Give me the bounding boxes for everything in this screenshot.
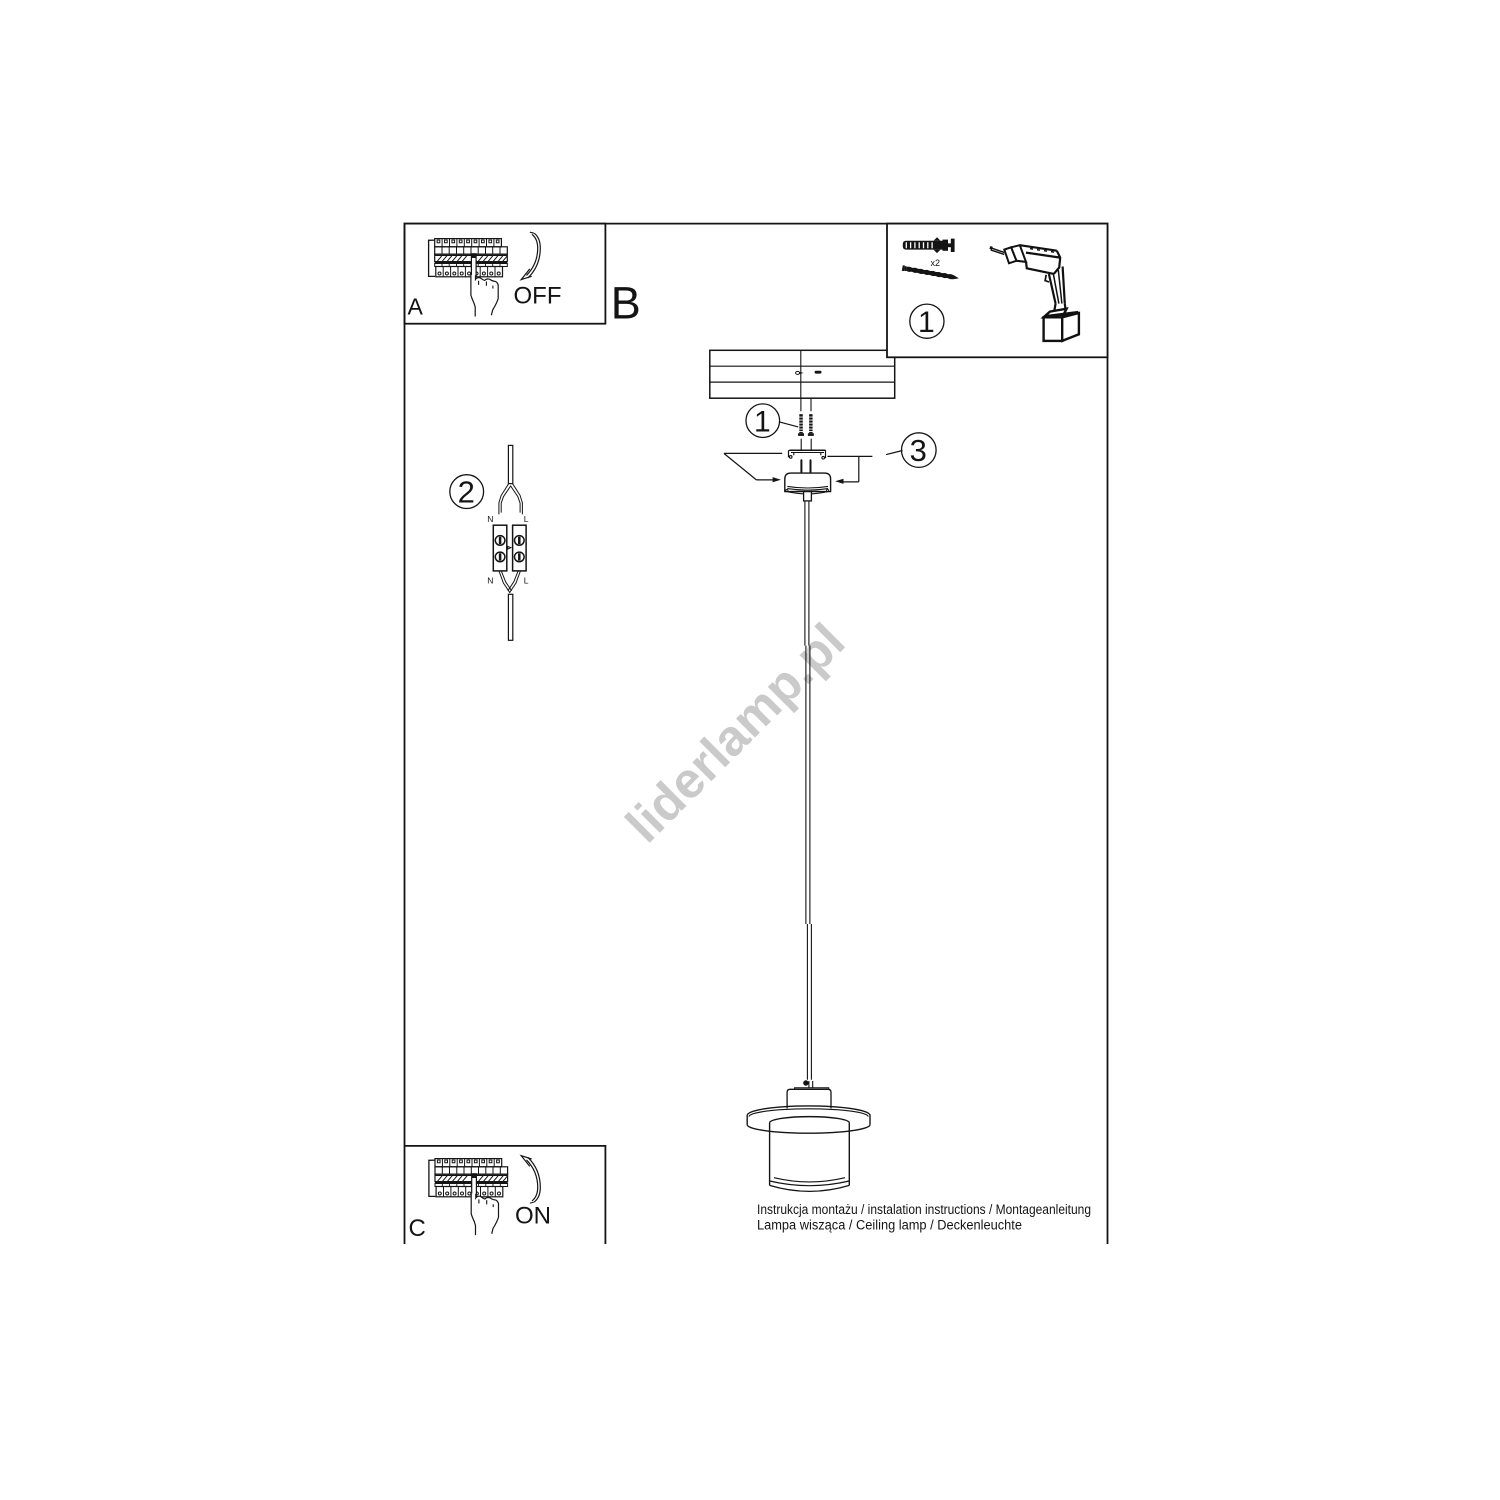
svg-text:x2: x2 — [931, 258, 941, 268]
svg-text:Lampa wisząca / Ceiling lamp /: Lampa wisząca / Ceiling lamp / Deckenleu… — [757, 1217, 1022, 1232]
svg-text:1: 1 — [754, 405, 771, 438]
svg-text:L: L — [524, 575, 529, 585]
svg-text:ON: ON — [515, 1203, 551, 1230]
svg-text:A: A — [408, 294, 424, 320]
svg-text:C: C — [409, 1215, 426, 1242]
svg-text:L: L — [524, 514, 529, 524]
svg-text:Instrukcja montażu / instalati: Instrukcja montażu / instalation instruc… — [757, 1202, 1091, 1217]
svg-text:3: 3 — [910, 433, 927, 468]
svg-text:1: 1 — [918, 306, 935, 339]
svg-text:N: N — [487, 514, 493, 524]
svg-text:N: N — [487, 575, 493, 585]
svg-text:2: 2 — [458, 475, 475, 510]
svg-text:B: B — [611, 277, 641, 328]
svg-text:OFF: OFF — [514, 282, 562, 309]
